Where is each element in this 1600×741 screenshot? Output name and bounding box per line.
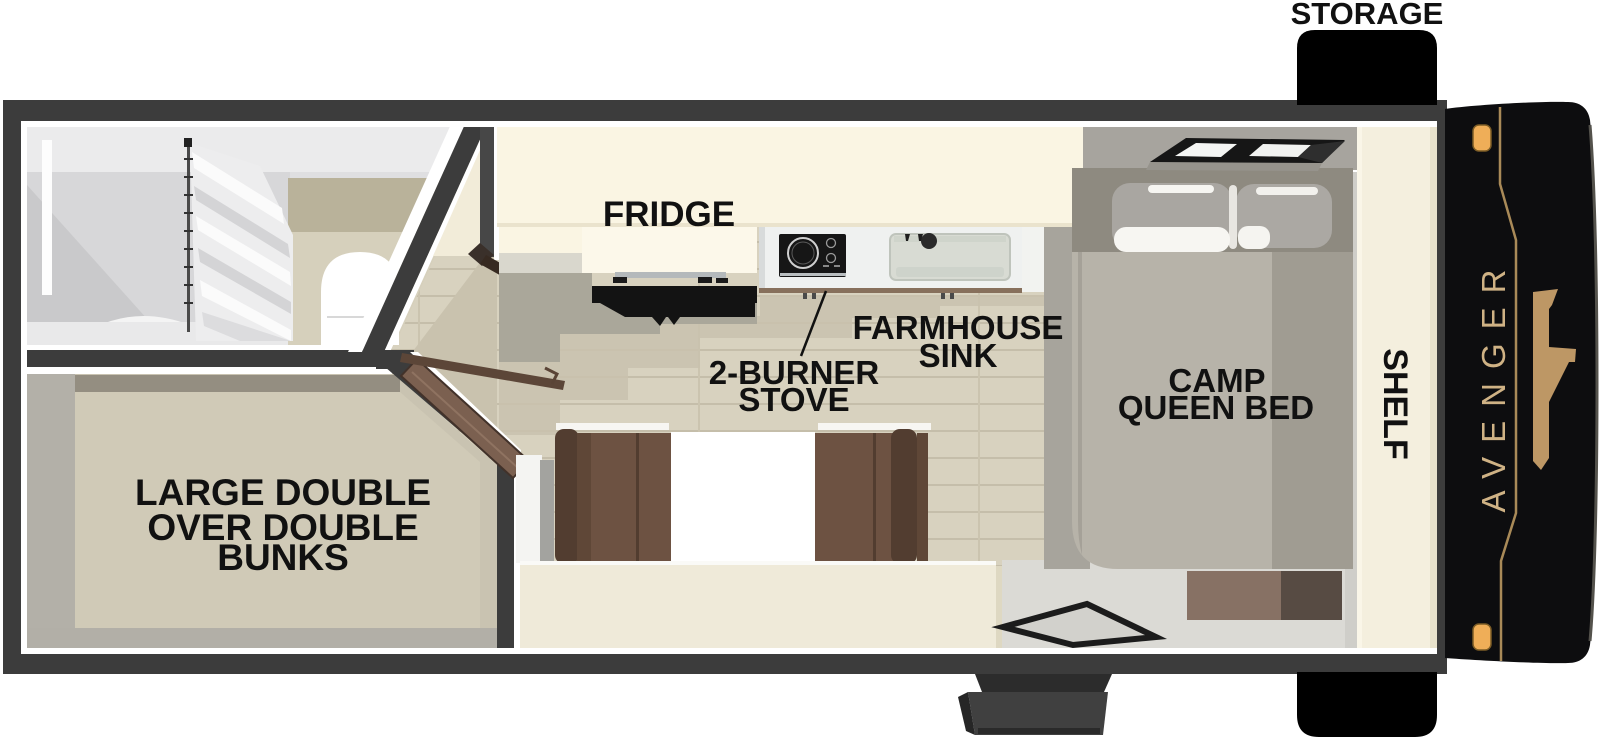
svg-text:FRIDGE: FRIDGE xyxy=(603,195,735,234)
svg-text:QUEEN BED: QUEEN BED xyxy=(1118,389,1314,426)
svg-text:SINK: SINK xyxy=(919,337,998,374)
svg-text:STOVE: STOVE xyxy=(738,381,849,418)
svg-text:STORAGE: STORAGE xyxy=(1291,0,1444,31)
svg-text:SHELF: SHELF xyxy=(1376,348,1414,459)
svg-text:AVENGER: AVENGER xyxy=(1475,256,1512,513)
svg-text:BUNKS: BUNKS xyxy=(217,537,349,578)
